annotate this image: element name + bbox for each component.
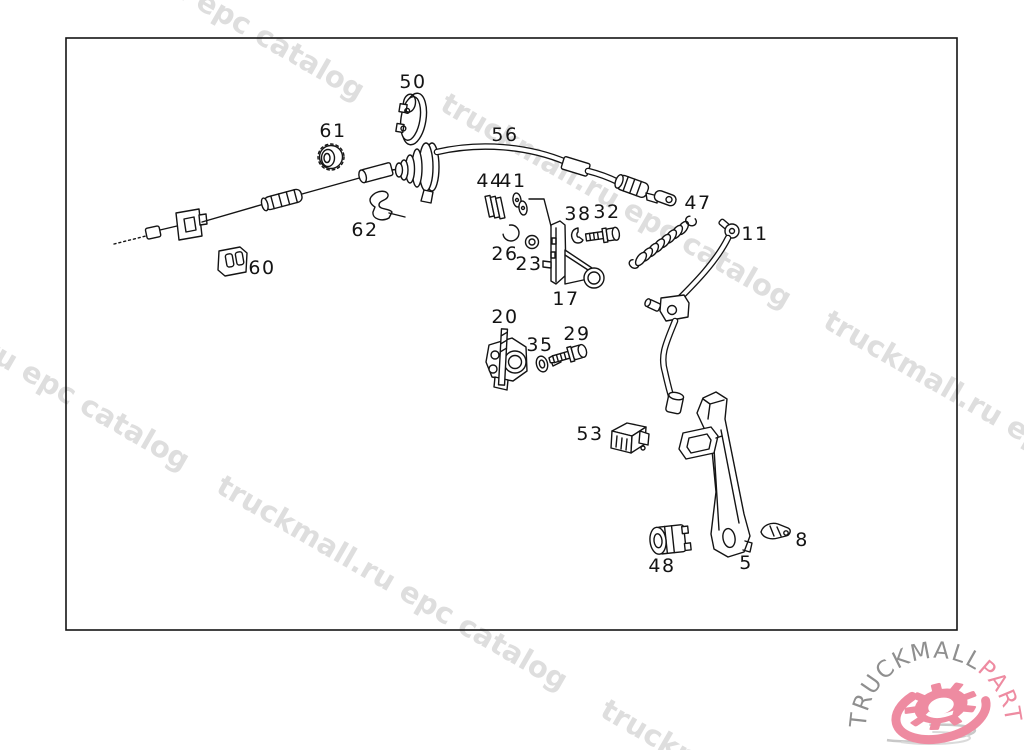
part-56-cable [114, 143, 677, 244]
part-8 [761, 523, 790, 538]
part-label-41: 41 [499, 170, 526, 192]
part-60 [218, 247, 247, 276]
part-53 [611, 423, 649, 453]
part-label-32: 32 [593, 201, 620, 223]
part-47 [628, 214, 698, 270]
page: truckmall.ru epc catalog truckmall.ru ep… [0, 0, 1024, 750]
part-label-8: 8 [795, 529, 809, 551]
part-label-56: 56 [491, 124, 518, 146]
part-41 [512, 193, 552, 230]
part-label-17: 17 [552, 288, 579, 310]
part-20 [486, 329, 527, 390]
part-26 [503, 225, 519, 241]
logo-text-truckmall: TRUCKMALL [846, 638, 987, 730]
part-62 [370, 191, 405, 220]
part-label-50: 50 [399, 71, 426, 93]
part-48 [649, 524, 692, 555]
part-label-53: 53 [576, 423, 603, 445]
part-label-62: 62 [351, 219, 378, 241]
part-44 [485, 193, 505, 221]
part-32 [585, 226, 620, 245]
part-label-29: 29 [563, 323, 590, 345]
part-label-5: 5 [739, 552, 753, 574]
part-label-61: 61 [319, 120, 346, 142]
parts-diagram: 50 61 56 44 41 38 32 47 11 62 26 23 60 1… [0, 0, 1024, 750]
part-23 [526, 236, 539, 249]
part-38 [572, 228, 583, 243]
part-5 [679, 392, 752, 557]
part-label-35: 35 [526, 334, 553, 356]
part-label-47: 47 [684, 192, 711, 214]
part-label-60: 60 [248, 257, 275, 279]
part-label-11: 11 [741, 223, 768, 245]
part-label-23: 23 [515, 253, 542, 275]
part-61 [318, 144, 344, 170]
part-label-20: 20 [491, 306, 518, 328]
part-label-38: 38 [564, 203, 591, 225]
part-label-48: 48 [648, 555, 675, 577]
part-50 [394, 91, 430, 147]
